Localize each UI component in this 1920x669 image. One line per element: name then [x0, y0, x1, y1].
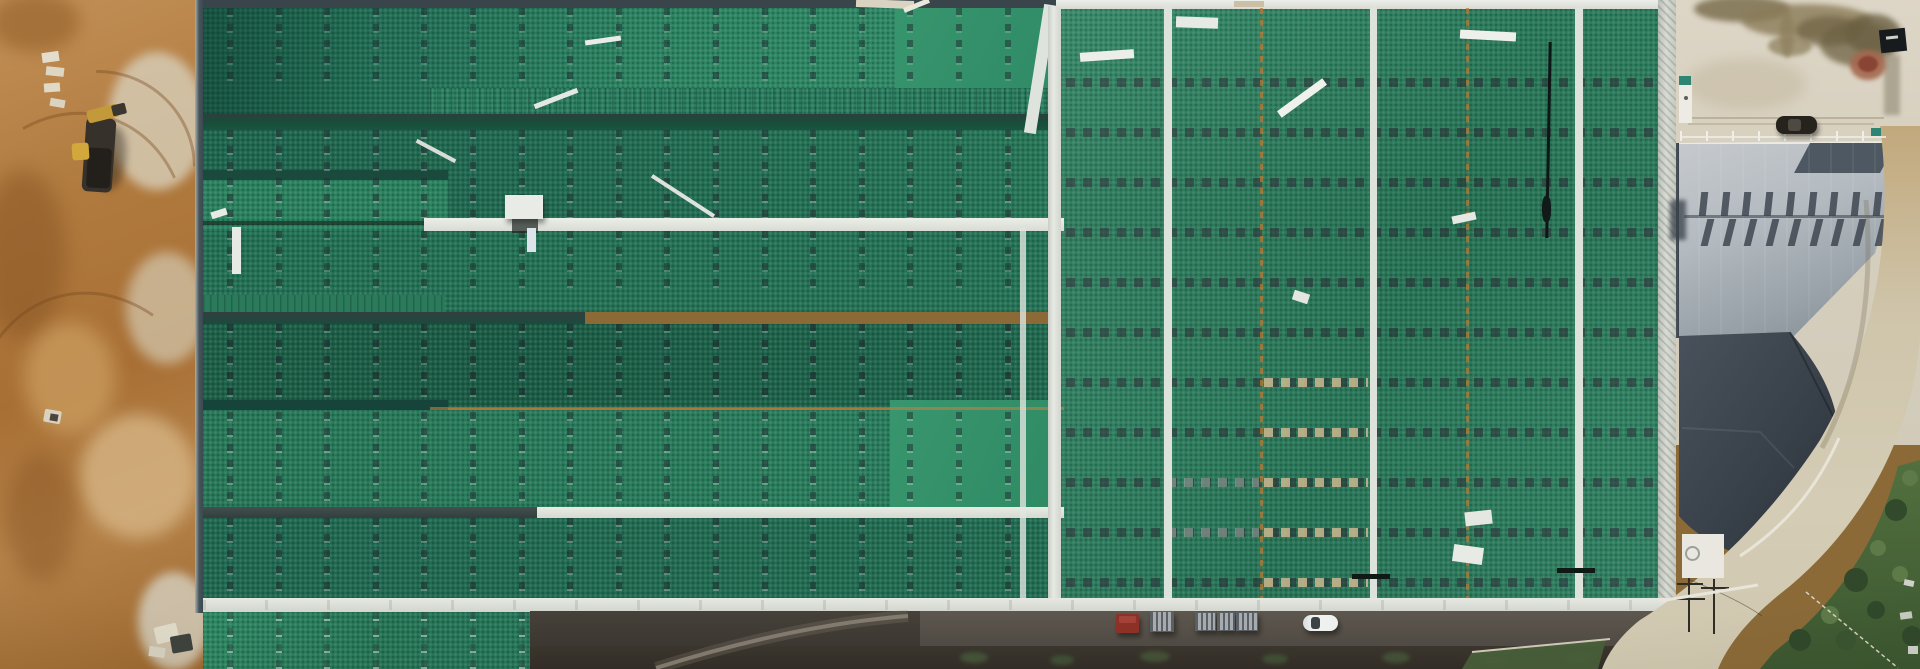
red-debris-pile-core	[1858, 56, 1878, 72]
dark-patch-near-edge	[1670, 200, 1686, 240]
white-shed-tank-ring	[1685, 546, 1700, 561]
black-car	[1776, 116, 1817, 134]
utility-box-dot	[1684, 96, 1688, 100]
utility-box-body	[1679, 85, 1692, 123]
fence-line	[1680, 136, 1886, 138]
aerial-photo-stage	[0, 0, 1920, 669]
right-zone-objects	[0, 0, 1920, 669]
dumpster	[1879, 28, 1907, 54]
teal-box	[1871, 128, 1881, 136]
utility-box-cap	[1679, 76, 1691, 85]
